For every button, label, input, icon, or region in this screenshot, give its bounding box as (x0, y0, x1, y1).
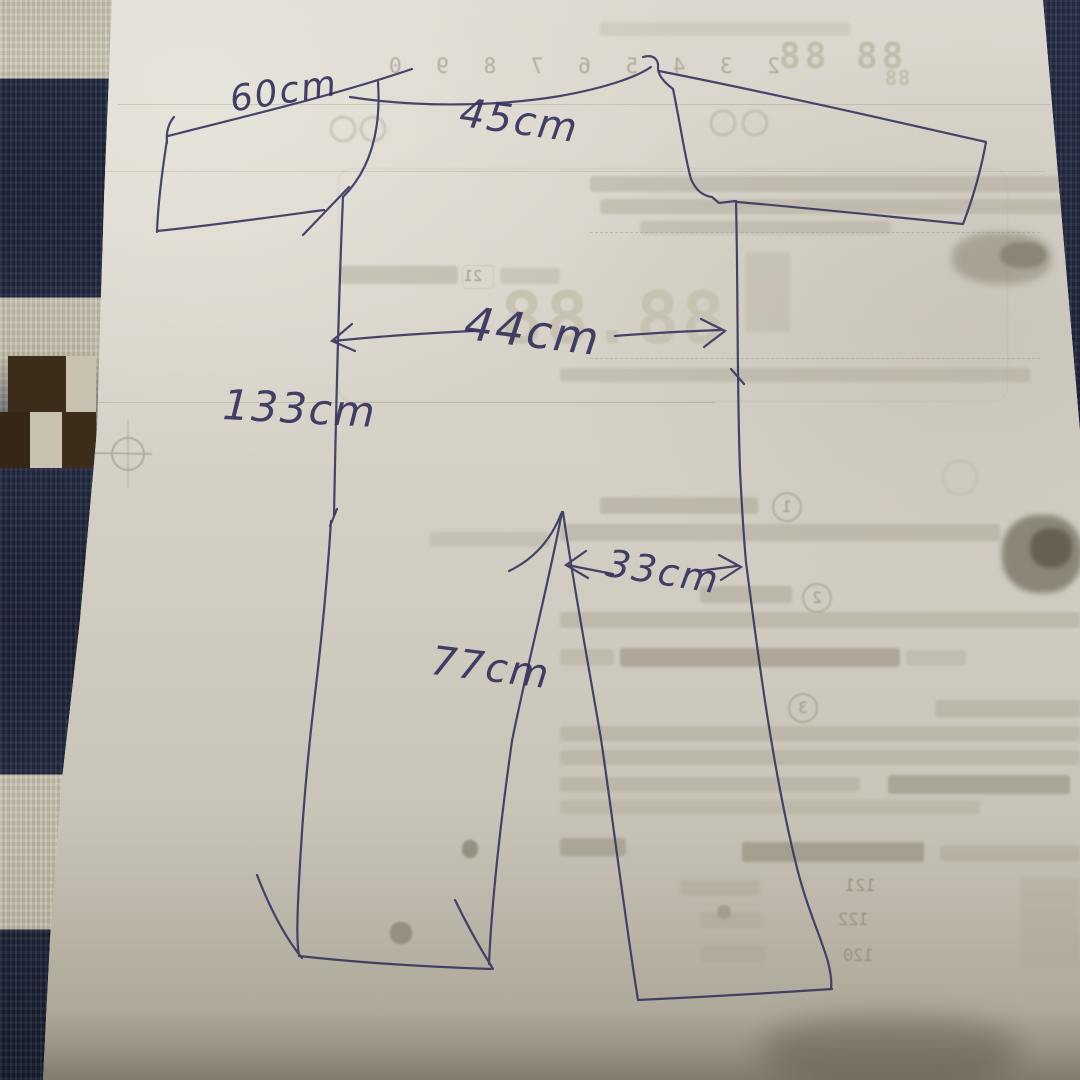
right-leg-hem (638, 989, 832, 1000)
left-leg-hem (299, 956, 491, 969)
carpet-checker-patch (0, 356, 96, 468)
torso-left-edge (330, 197, 343, 526)
torso-right-and-right-leg-outer (736, 201, 831, 989)
carpet-check-square (66, 356, 96, 412)
photo-of-measurement-sketch: 88 88 88 2 3 4 5 6 7 8 9 0 88.88 21 121 … (0, 0, 1080, 1080)
left-leg-outer-edge (297, 521, 331, 956)
photo-shadow (0, 1010, 1080, 1080)
carpet-check-square (8, 356, 66, 412)
carpet-check-square (62, 412, 96, 468)
hem-flick-marks (257, 875, 493, 969)
crotch-hook (509, 514, 561, 571)
carpet-check-square (0, 412, 30, 468)
right-sleeve-outline (659, 71, 986, 224)
garment-sketch-svg (0, 0, 1080, 1080)
carpet-check-square (30, 412, 62, 468)
total-length-label: 133cm (221, 380, 378, 437)
right-armhole-curve (673, 89, 736, 203)
left-leg-inner-edge (489, 512, 562, 964)
paper-sheet: 88 88 88 2 3 4 5 6 7 8 9 0 88.88 21 121 … (0, 0, 1080, 1080)
